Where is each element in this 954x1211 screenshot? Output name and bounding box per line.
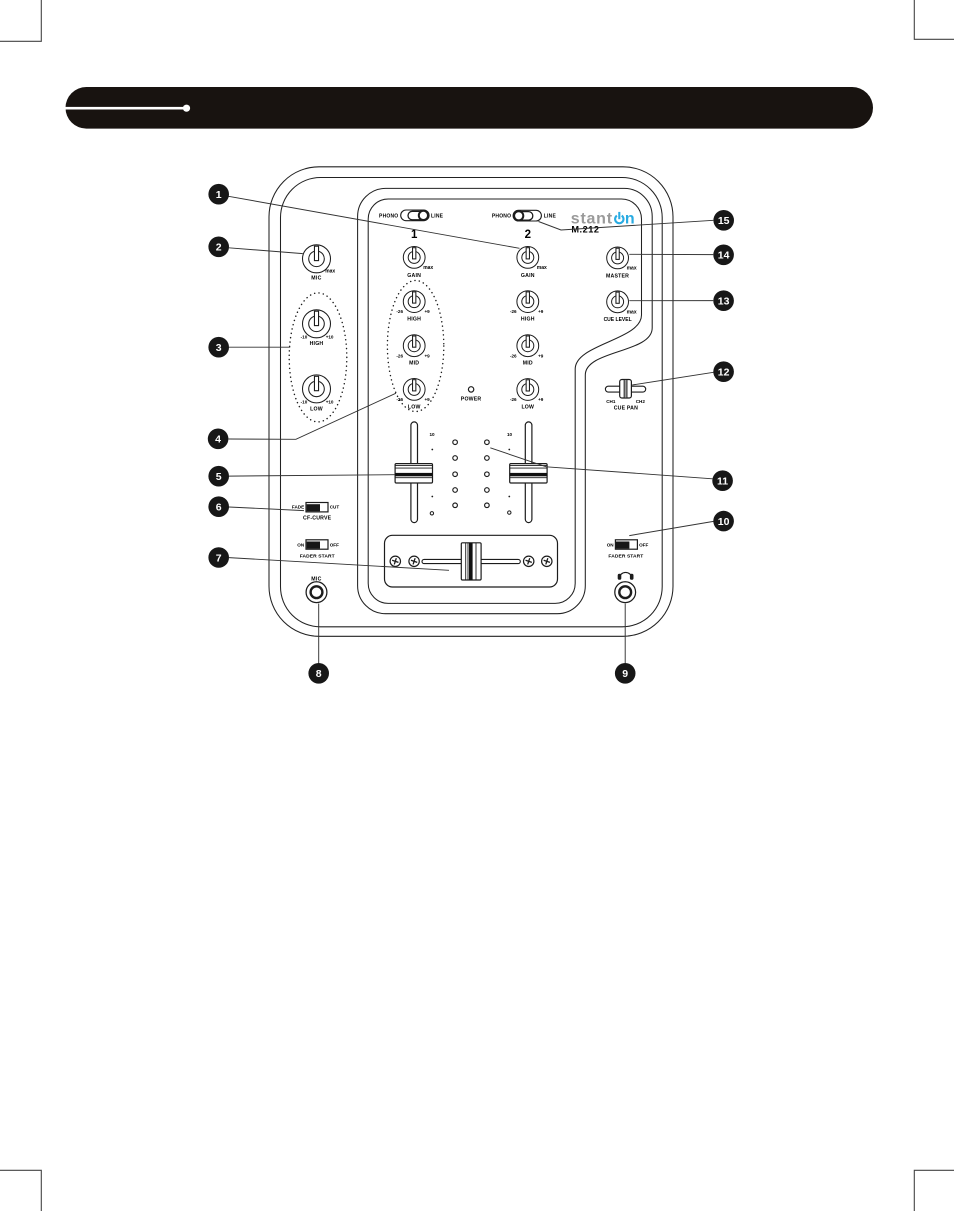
svg-text:max: max	[627, 310, 637, 316]
svg-text:LOW: LOW	[408, 404, 421, 410]
svg-text:max: max	[627, 266, 637, 272]
svg-text:FADER START: FADER START	[300, 553, 335, 559]
svg-text:n: n	[625, 210, 635, 227]
svg-text:7: 7	[216, 552, 222, 564]
svg-text:OFF: OFF	[330, 543, 339, 548]
svg-text:PHONO: PHONO	[492, 214, 511, 220]
svg-text:14: 14	[718, 250, 730, 262]
svg-text:HIGH: HIGH	[310, 341, 324, 347]
svg-text:6: 6	[216, 502, 222, 514]
svg-text:10: 10	[507, 432, 513, 437]
svg-text:CUE LEVEL: CUE LEVEL	[604, 317, 632, 323]
svg-text:M.212: M.212	[571, 225, 599, 235]
svg-text:12: 12	[718, 367, 730, 379]
svg-text:+9: +9	[425, 353, 431, 358]
svg-text:10: 10	[718, 516, 730, 528]
svg-text:LINE: LINE	[431, 213, 444, 219]
svg-text:MID: MID	[409, 361, 419, 367]
svg-text:ON: ON	[297, 543, 305, 548]
svg-text:+9: +9	[538, 309, 544, 314]
svg-text:FADE: FADE	[292, 505, 304, 510]
svg-text:5: 5	[216, 471, 222, 483]
svg-text:LOW: LOW	[310, 407, 323, 413]
svg-text:+10: +10	[326, 399, 334, 404]
svg-text:4: 4	[215, 434, 221, 446]
svg-text:HIGH: HIGH	[521, 317, 535, 323]
svg-text:max: max	[325, 268, 335, 274]
svg-text:1: 1	[411, 229, 418, 241]
svg-text:11: 11	[717, 476, 728, 488]
svg-text:CH2: CH2	[636, 399, 646, 404]
svg-text:OFF: OFF	[639, 543, 648, 548]
svg-text:CH1: CH1	[606, 399, 616, 404]
svg-text:3: 3	[216, 342, 222, 354]
svg-text:POWER: POWER	[461, 397, 482, 403]
svg-text:15: 15	[718, 215, 730, 227]
svg-text:-26: -26	[396, 397, 403, 402]
svg-text:-10: -10	[301, 399, 308, 404]
svg-text:LINE: LINE	[544, 214, 557, 220]
svg-text:-26: -26	[510, 309, 517, 314]
svg-text:+9: +9	[538, 353, 544, 358]
svg-text:-26: -26	[396, 353, 403, 358]
svg-text:13: 13	[718, 296, 730, 308]
svg-text:MIC: MIC	[311, 276, 321, 282]
svg-text:+9: +9	[538, 397, 544, 402]
svg-text:MID: MID	[523, 361, 533, 367]
svg-text:GAIN: GAIN	[407, 273, 421, 279]
svg-text:9: 9	[622, 668, 628, 680]
svg-text:-10: -10	[301, 334, 308, 339]
svg-text:max: max	[537, 265, 547, 271]
svg-text:PHONO: PHONO	[379, 213, 398, 219]
svg-text:CUE PAN: CUE PAN	[614, 406, 638, 412]
svg-text:8: 8	[316, 668, 322, 680]
svg-text:2: 2	[525, 229, 531, 241]
svg-text:+9: +9	[425, 309, 431, 314]
svg-text:LOW: LOW	[521, 405, 534, 411]
svg-text:+9: +9	[425, 397, 431, 402]
svg-text:MASTER: MASTER	[606, 274, 629, 280]
svg-text:FADER START: FADER START	[608, 553, 643, 559]
svg-text:ON: ON	[607, 543, 615, 548]
svg-text:+10: +10	[326, 334, 334, 339]
svg-text:-26: -26	[396, 309, 403, 314]
svg-text:CF-CURVE: CF-CURVE	[303, 515, 332, 521]
svg-text:-26: -26	[510, 397, 517, 402]
svg-text:CUT: CUT	[330, 505, 340, 510]
svg-text:-26: -26	[510, 353, 517, 358]
svg-text:2: 2	[216, 242, 222, 254]
svg-text:HIGH: HIGH	[407, 317, 421, 323]
svg-text:10: 10	[429, 432, 435, 437]
svg-text:1: 1	[216, 189, 222, 201]
svg-text:GAIN: GAIN	[521, 273, 535, 279]
svg-text:max: max	[423, 265, 433, 271]
